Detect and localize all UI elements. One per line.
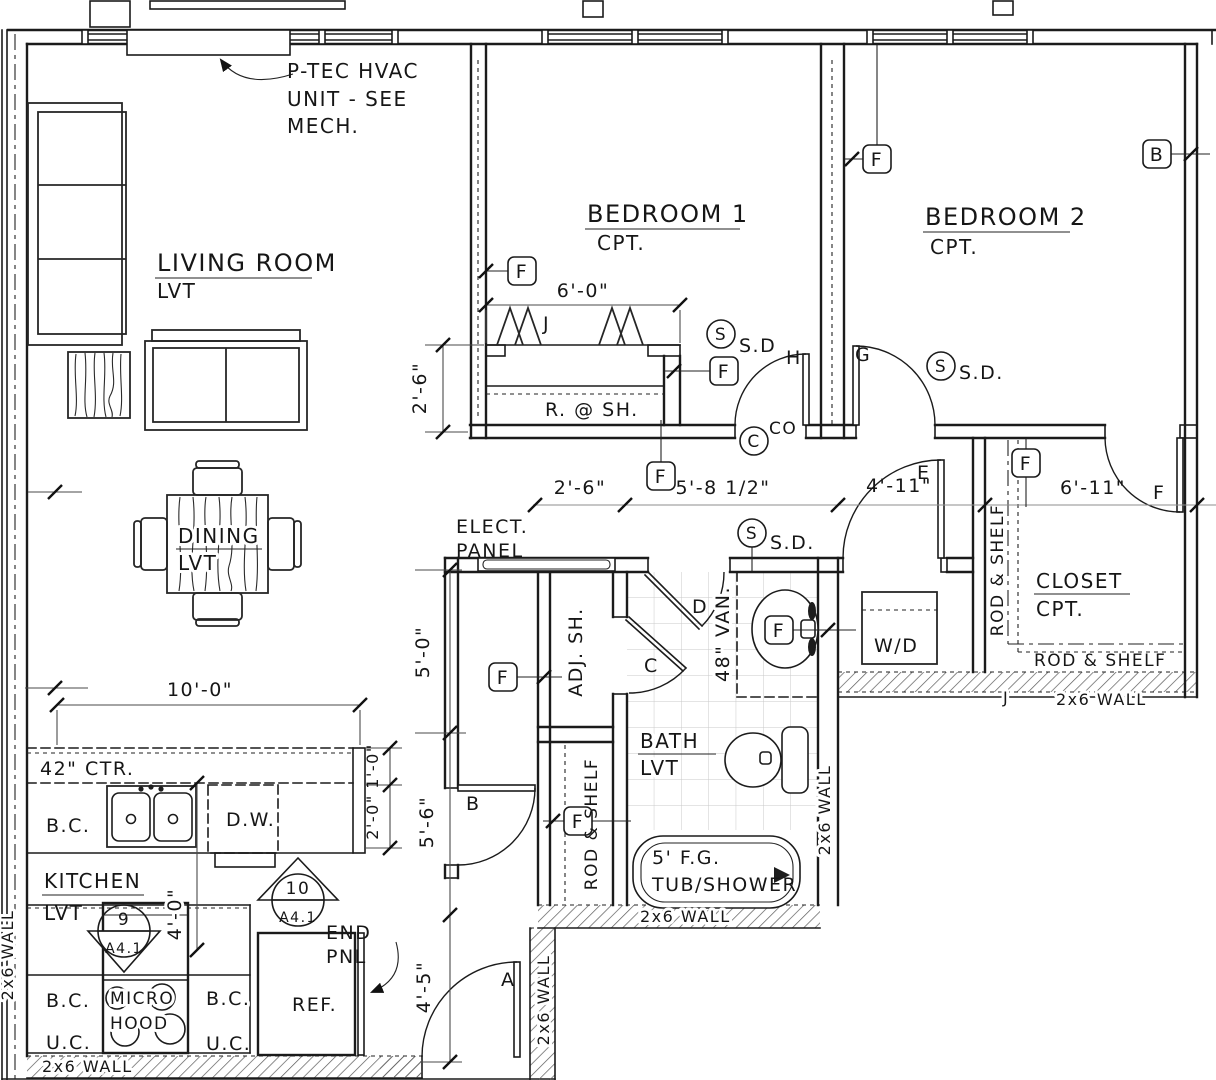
door-f-closet (1105, 438, 1183, 512)
dim-4-11: 4'-11" (866, 475, 932, 497)
detail-number: 9 (118, 910, 130, 930)
label-rod-shelf-entry: ROD & SHELF (582, 758, 602, 890)
door-tag-f: F (1153, 482, 1165, 504)
floor-plan-drawing: A B C D E F G H J J 6'-0" 2'-6" 2'-6" 5'… (0, 0, 1216, 1080)
floor-label-kitchen: LVT (44, 901, 83, 925)
room-label-bath: BATH (640, 729, 699, 753)
door-tag-g: G (855, 344, 871, 366)
floor-label-bedroom1: CPT. (597, 231, 645, 255)
dim-4-5: 4'-5" (413, 961, 435, 1014)
dim-10-0: 10'-0" (167, 679, 233, 701)
keynote-f: F (718, 361, 730, 383)
sofa (28, 103, 126, 345)
dim-2-6-v: 2'-6" (409, 362, 431, 415)
detail-callout-10: 10 A4.1 (258, 858, 338, 926)
co-letter: C (747, 432, 760, 452)
detail-sheet: A4.1 (105, 941, 143, 957)
dim-5-6: 5'-6" (416, 796, 438, 849)
floor-label-closet: CPT. (1036, 597, 1084, 621)
window-mullion (947, 30, 953, 44)
door-tag-h: H (786, 347, 802, 369)
dim-2-6-h: 2'-6" (554, 477, 607, 499)
sd-letter: S (746, 524, 758, 544)
dim-5-8-half: 5'-8 1/2" (675, 477, 770, 499)
sd-label-hall: S.D. (770, 532, 815, 554)
keynote-f: F (871, 149, 883, 171)
sd-label-bedroom2: S.D. (959, 362, 1004, 384)
window-mullion (722, 30, 728, 44)
floor-label-dining: LVT (178, 551, 217, 575)
window-mullion (632, 30, 638, 44)
hvac-note: P-TEC HVAC UNIT - SEE MECH. (221, 59, 419, 138)
room-label-bedroom1: BEDROOM 1 (587, 200, 749, 228)
label-elect-2: PANEL (456, 540, 524, 562)
floor-label-living: LVT (157, 279, 196, 303)
sd-letter: S (715, 325, 727, 345)
label-2x6-kitchen: 2x6 WALL (42, 1057, 133, 1076)
end-table (68, 352, 130, 418)
label-48-van: 48" VAN. (712, 586, 734, 682)
dim-5-0: 5'-0" (412, 626, 434, 679)
keynote-f: F (655, 466, 667, 488)
label-2x6-entry: 2x6 WALL (534, 955, 553, 1046)
keynote-f: F (516, 261, 528, 283)
dim-1-0: 1'-0" (363, 743, 382, 788)
closet-hangers (497, 308, 643, 345)
label-2x6-bath-east: 2x6 WALL (815, 765, 834, 856)
hvac-unit (127, 30, 290, 55)
label-hood: HOOD (110, 1014, 169, 1034)
door-tag-a: A (501, 969, 516, 991)
label-42-ctr: 42" CTR. (40, 758, 134, 780)
sd-letter: S (935, 357, 947, 377)
room-label-kitchen: KITCHEN (44, 869, 141, 893)
dim-6-0: 6'-0" (557, 280, 610, 302)
window-mullion (1027, 30, 1033, 44)
keynote-f: F (773, 620, 785, 642)
window-mullion (867, 30, 873, 44)
label-tub-2: TUB/SHOWER (651, 874, 797, 896)
label-elect-1: ELECT. (456, 516, 528, 538)
label-2x6-bath: 2x6 WALL (640, 907, 731, 926)
label-bc-1: B.C. (46, 815, 90, 837)
loveseat (145, 330, 307, 430)
co-label: CO (769, 419, 797, 439)
toilet (725, 727, 808, 793)
dim-2-0: 2'-0" (363, 794, 382, 839)
label-uc-1: U.C. (46, 1032, 91, 1054)
door-tag-d: D (692, 596, 708, 618)
keynote-f: F (1020, 453, 1032, 475)
label-adj-sh: ADJ. SH. (565, 607, 587, 696)
detail-number: 10 (286, 879, 311, 899)
label-rod-shelf-closet-v: ROD & SHELF (988, 504, 1008, 636)
room-label-dining: DINING (178, 524, 260, 548)
dim-6-11: 6'-11" (1060, 477, 1126, 499)
hvac-note-line2: UNIT - SEE (287, 87, 408, 111)
dim-4-0: 4'-0" (164, 888, 186, 941)
room-label-living: LIVING ROOM (157, 249, 337, 277)
label-2x6-left: 2x6 WALL (0, 910, 17, 1001)
label-ref: REF. (292, 994, 337, 1016)
label-uc-2: U.C. (206, 1033, 251, 1055)
label-micro: MICRO (110, 989, 174, 1009)
hvac-note-line1: P-TEC HVAC (287, 59, 419, 83)
window-mullion (319, 30, 325, 44)
hvac-note-arrow (221, 60, 293, 80)
window-mullion (392, 30, 398, 44)
hvac-note-line3: MECH. (287, 114, 359, 138)
window-mullion (82, 30, 88, 44)
furniture (28, 103, 307, 626)
keynote-b: B (1150, 144, 1165, 166)
label-end: END (326, 922, 371, 944)
kitchen-sink (107, 784, 196, 847)
label-bc-3: B.C. (206, 988, 250, 1010)
label-rod-shelf-closet-h: ROD & SHELF (1034, 651, 1166, 671)
floor-plan-sheet: A B C D E F G H J J 6'-0" 2'-6" 2'-6" 5'… (0, 0, 1216, 1080)
end-panel-arrow (372, 942, 398, 992)
equipment (127, 30, 937, 664)
floor-label-bedroom2: CPT. (930, 235, 978, 259)
floor-label-bath: LVT (640, 756, 679, 780)
label-2x6-closet: 2x6 WALL (1056, 690, 1147, 709)
door-tag-j2: J (1002, 688, 1009, 707)
faucet (808, 602, 816, 620)
keynote-f: F (497, 667, 509, 689)
detail-sheet: A4.1 (279, 910, 317, 926)
label-bc-2: B.C. (46, 990, 90, 1012)
door-tag-j: J (542, 313, 550, 335)
label-r-at-sh: R. @ SH. (545, 399, 639, 421)
label-tub-1: 5' F.G. (652, 847, 721, 869)
label-pnl: PNL (326, 946, 367, 968)
label-wd: W/D (874, 635, 918, 657)
door-tag-b: B (466, 793, 481, 815)
room-label-bedroom2: BEDROOM 2 (925, 203, 1087, 231)
door-tag-c: C (644, 655, 659, 677)
sd-label-bedroom1: S.D (739, 335, 776, 357)
room-label-closet: CLOSET (1036, 569, 1123, 593)
window-mullion (542, 30, 548, 44)
label-dw: D.W. (226, 809, 275, 831)
